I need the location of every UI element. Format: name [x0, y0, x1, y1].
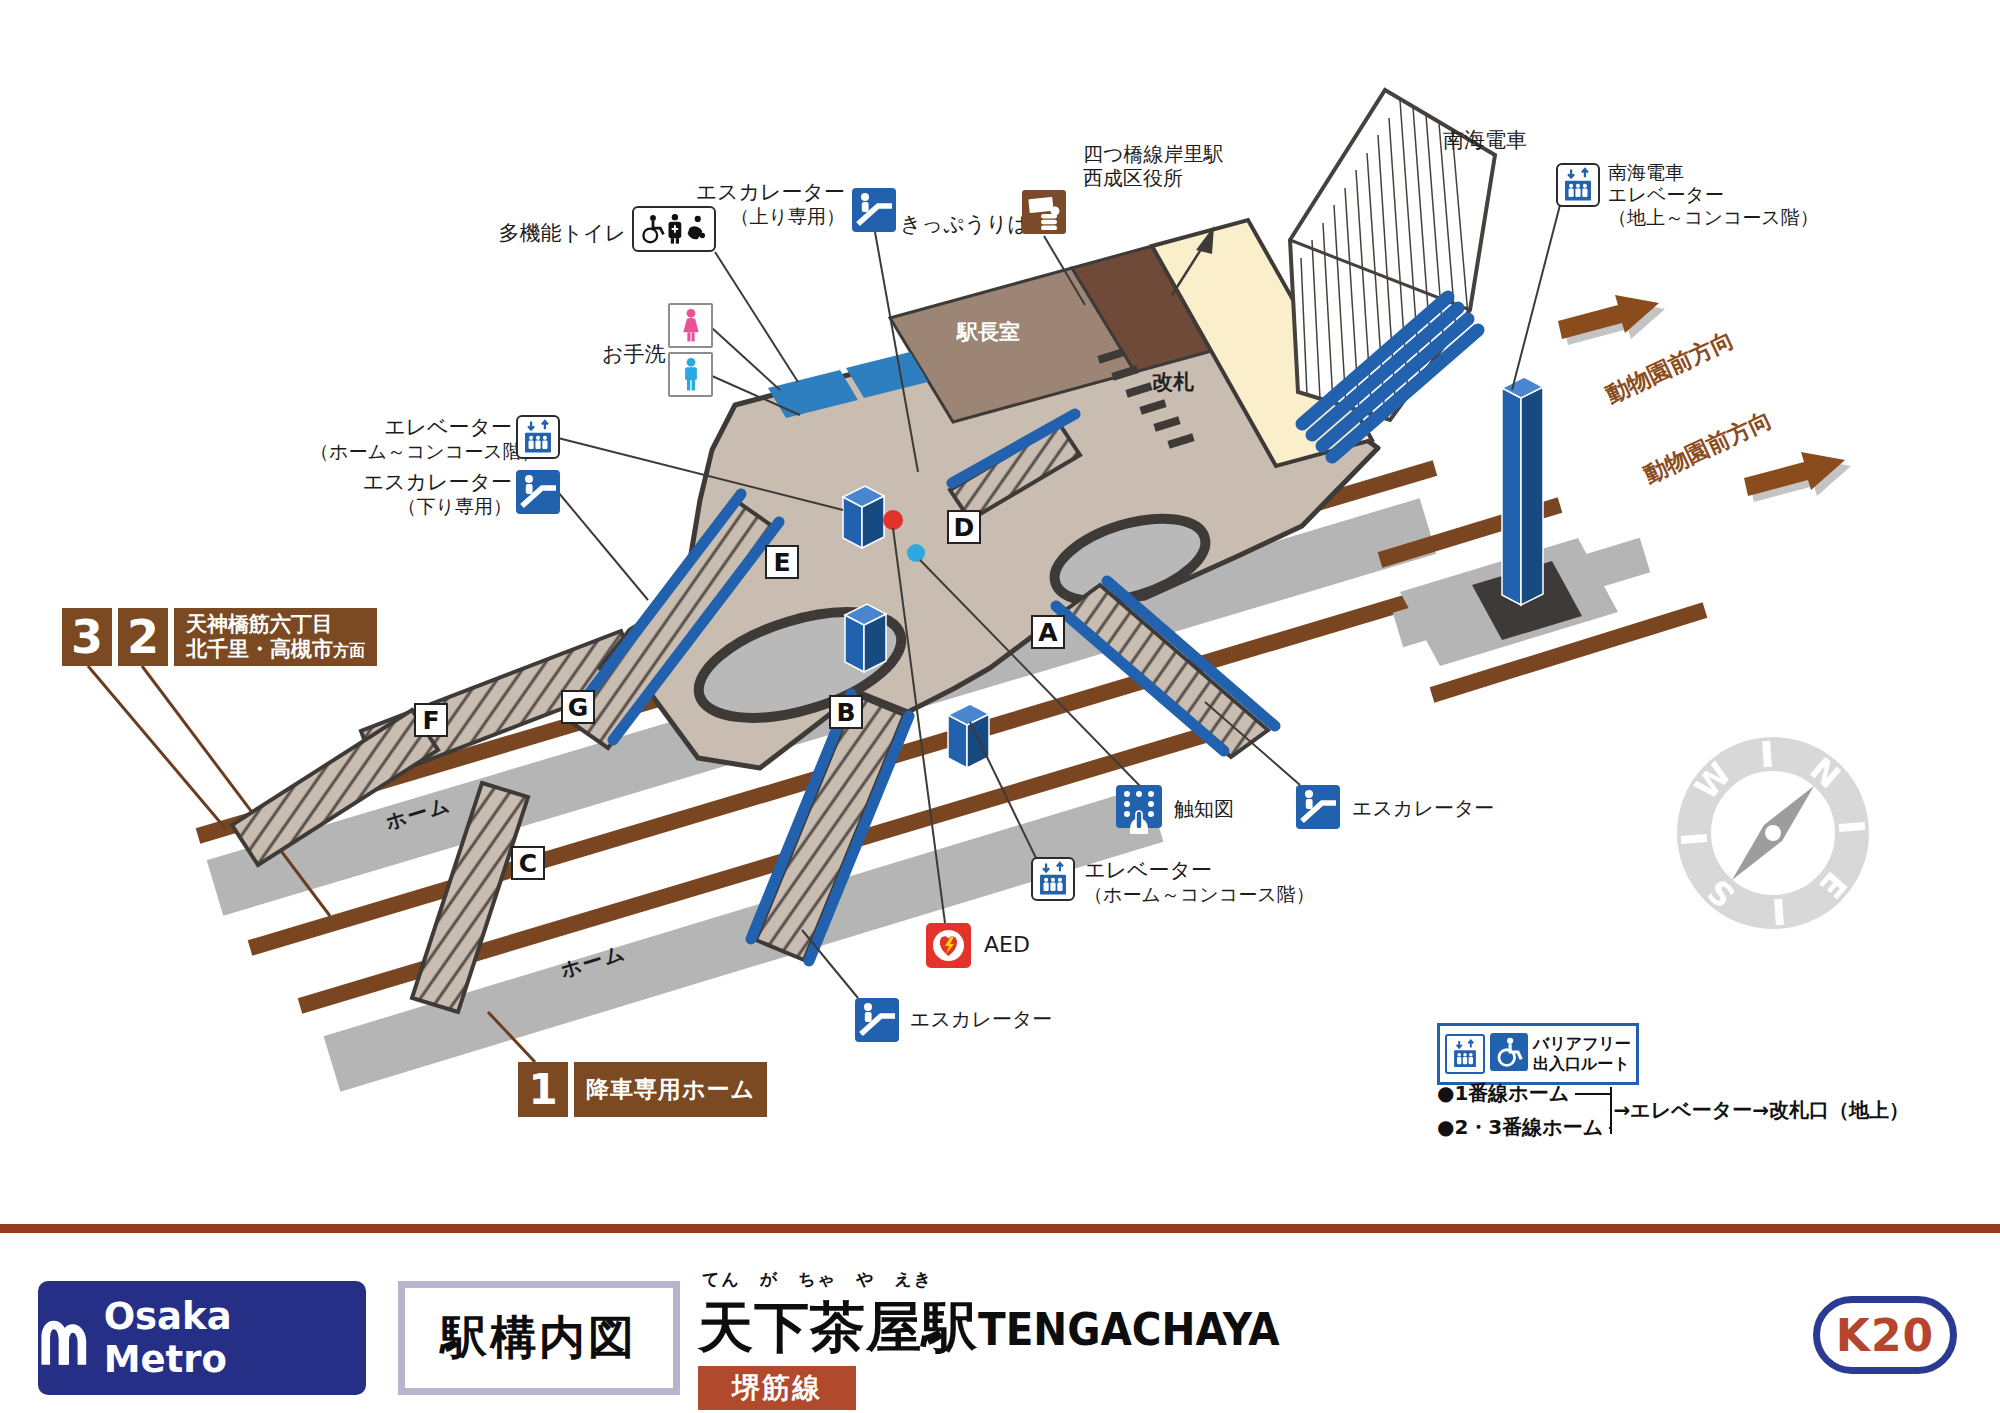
tactile-map-icon	[1116, 785, 1162, 837]
female-icon	[668, 303, 713, 348]
label-yotsubashi: 四つ橋線岸里駅 西成区役所	[1083, 143, 1223, 190]
label-ticket-gate: 改札	[1152, 368, 1194, 396]
label-ticket-office: きっぷうりば	[900, 212, 1029, 237]
exit-a: A	[1031, 615, 1065, 649]
platform-1-label: 降車専用ホーム	[574, 1062, 767, 1117]
ticket-machine-icon	[1022, 190, 1066, 234]
line-name-badge: 堺筋線	[698, 1366, 856, 1410]
label-escalator-up: エスカレーター （上り専用）	[655, 180, 845, 227]
label-restroom: お手洗	[602, 342, 666, 367]
elevator-icon	[516, 415, 560, 459]
label-escalator-down: エスカレーター （下り専用）	[360, 470, 512, 517]
platform-1-number: 1	[518, 1062, 568, 1117]
label-nankai-elevator: 南海電車 エレベーター （地上～コンコース階）	[1608, 161, 1819, 228]
label-nankai: 南海電車	[1443, 128, 1527, 153]
barrier-free-title: バリアフリー 出入口ルート	[1533, 1034, 1631, 1074]
platform-32-badge: 3 2 天神橋筋六丁目 北千里・高槻市方面	[62, 608, 377, 666]
escalator-icon	[855, 998, 899, 1042]
route-bracket	[1610, 1087, 1612, 1134]
aed-location-dot	[883, 510, 903, 530]
station-name-ja: 天下茶屋駅	[698, 1291, 978, 1365]
brand-name: Osaka Metro	[104, 1295, 366, 1381]
osaka-metro-mark	[38, 1306, 90, 1370]
exit-c: C	[511, 846, 545, 880]
escalator-icon	[1296, 785, 1340, 829]
barrier-free-routes: ●1番線ホーム ●2・3番線ホーム →エレベーター→改札口（地上）	[1437, 1080, 1909, 1141]
tactile-location-dot	[907, 544, 925, 562]
escalator-icon	[516, 470, 560, 514]
route-platform-1: ●1番線ホーム	[1437, 1080, 1610, 1107]
platform-1-badge: 1 降車専用ホーム	[518, 1062, 767, 1117]
escalator-icon	[852, 188, 896, 232]
label-elevator-center: エレベーター （ホーム～コンコース階）	[1084, 858, 1315, 905]
route-destination: →エレベーター→改札口（地上）	[1614, 1097, 1909, 1124]
platform-3-number: 3	[62, 608, 112, 666]
label-multifunction-toilet: 多機能トイレ	[430, 221, 626, 246]
station-furigana: てん が ちゃ や えき	[702, 1268, 933, 1291]
label-escalator-right: エスカレーター	[1352, 797, 1494, 821]
label-aed: AED	[984, 932, 1030, 958]
station-map-poster: N E S W 多機能トイレ エスカレーター （上り専用）	[0, 0, 2000, 1413]
exit-g: G	[561, 690, 595, 724]
wheelchair-icon	[1490, 1033, 1528, 1075]
elevator-icon	[1556, 163, 1600, 207]
exit-e: E	[765, 545, 799, 579]
label-station-master-room: 駅長室	[957, 318, 1020, 346]
aed-icon	[926, 923, 971, 968]
barrier-free-legend: バリアフリー 出入口ルート	[1437, 1023, 1639, 1085]
label-tactile-map: 触知図	[1174, 798, 1234, 822]
elevator-icon	[1445, 1034, 1485, 1074]
platform-32-destination: 天神橋筋六丁目 北千里・高槻市方面	[174, 608, 377, 666]
label-elevator-left: エレベーター （ホーム～コンコース階）	[310, 415, 512, 462]
map-title: 駅構内図	[398, 1281, 680, 1395]
male-icon	[668, 352, 713, 397]
station-code-badge: K20	[1813, 1296, 1957, 1374]
station-name-en: TENGACHAYA	[978, 1303, 1280, 1356]
platform-2-number: 2	[118, 608, 168, 666]
elevator-icon	[1031, 857, 1075, 901]
label-escalator-bottom: エスカレーター	[910, 1008, 1052, 1032]
route-platform-23: ●2・3番線ホーム	[1437, 1114, 1610, 1141]
compass-icon: N E S W	[1681, 741, 1865, 925]
exit-b: B	[829, 695, 863, 729]
exit-f: F	[414, 703, 448, 737]
osaka-metro-logo: Osaka Metro	[38, 1281, 366, 1395]
footer-separator	[0, 1224, 2000, 1233]
exit-d: D	[947, 510, 981, 544]
